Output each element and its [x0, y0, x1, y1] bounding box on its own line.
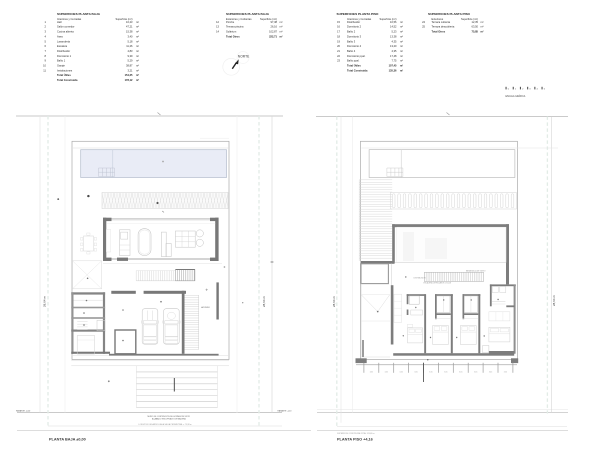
svg-text:Hall: Hall: [57, 20, 62, 24]
svg-text:DISTRIBUIDOR: DISTRIBUIDOR: [414, 277, 427, 279]
svg-text:Total Construida: Total Construida: [347, 68, 368, 72]
svg-text:17,48: 17,48: [390, 54, 397, 58]
svg-text:Distribuidor: Distribuidor: [347, 20, 360, 24]
svg-text:3,40: 3,40: [127, 34, 133, 38]
svg-text:RASANTE -1,20: RASANTE -1,20: [278, 409, 292, 412]
svg-text:3,65: 3,65: [429, 372, 432, 374]
svg-text:Baño 1: Baño 1: [57, 59, 66, 63]
svg-text:SUPERFICIES PLANTA PISO: SUPERFICIES PLANTA PISO: [337, 12, 380, 16]
svg-text:m²: m²: [400, 26, 403, 29]
svg-text:Dormitorio ppal.: Dormitorio ppal.: [347, 54, 366, 58]
svg-text:m²: m²: [400, 40, 403, 43]
svg-text:PLANTA PISO +4,16: PLANTA PISO +4,16: [337, 437, 373, 441]
svg-text:Dormitorio 1: Dormitorio 1: [57, 54, 72, 58]
svg-text:m²: m²: [400, 55, 403, 58]
svg-text:11,26: 11,26: [126, 44, 133, 48]
svg-text:m²: m²: [400, 60, 403, 63]
svg-text:LONGITUD DESARROLLADA VALLA PE: LONGITUD DESARROLLADA VALLA PERIMETRAL =…: [138, 423, 192, 426]
svg-text:3,65: 3,65: [414, 372, 417, 374]
svg-text:5,23: 5,23: [391, 30, 397, 34]
svg-text:ESCALERA 18 PELDAÑOS 17,5x28: ESCALERA 18 PELDAÑOS 17,5x28: [424, 282, 451, 285]
svg-text:3,65: 3,65: [400, 372, 403, 374]
svg-text:m²: m²: [400, 31, 403, 34]
svg-text:47,21: 47,21: [126, 25, 133, 29]
svg-text:SUPERFICIES PLANTA PISO: SUPERFICIES PLANTA PISO: [428, 12, 471, 16]
svg-text:Terraza cubierta: Terraza cubierta: [432, 20, 451, 24]
svg-text:26,16: 26,16: [271, 25, 278, 29]
svg-text:3,21: 3,21: [127, 68, 133, 72]
svg-text:m²: m²: [136, 65, 139, 68]
svg-text:3,65: 3,65: [444, 372, 447, 374]
svg-text:m²: m²: [400, 35, 403, 38]
svg-text:14,52: 14,52: [390, 25, 397, 29]
svg-text:ACCESO: ACCESO: [201, 306, 210, 309]
svg-text:Lavandería: Lavandería: [57, 39, 71, 43]
svg-text:MURO DE CONTENCIÓN DE HORMIGÓN: MURO DE CONTENCIÓN DE HORMIGÓN VISTO: [147, 415, 190, 418]
svg-text:Dormitorio 2: Dormitorio 2: [347, 25, 362, 29]
svg-text:m²: m²: [136, 73, 139, 77]
svg-text:Total Otros: Total Otros: [226, 34, 240, 38]
svg-text:Baño 2: Baño 2: [347, 30, 356, 34]
svg-text:Instalaciones: Instalaciones: [57, 68, 73, 72]
svg-text:135,36: 135,36: [389, 68, 397, 72]
svg-text:3,65: 3,65: [474, 372, 477, 374]
svg-text:m²: m²: [400, 50, 403, 53]
svg-text:3,65: 3,65: [385, 372, 388, 374]
svg-text:7,75: 7,75: [391, 59, 397, 63]
svg-text:m²: m²: [136, 31, 139, 34]
svg-text:Dormitorio 4: Dormitorio 4: [347, 44, 362, 48]
svg-text:Total Otros: Total Otros: [432, 30, 446, 34]
svg-text:15,38: 15,38: [126, 30, 133, 34]
svg-text:m²: m²: [280, 31, 283, 34]
svg-text:5,18: 5,18: [127, 39, 133, 43]
svg-text:ACABADO ENCOFRADO DE MADERA: ACABADO ENCOFRADO DE MADERA: [152, 418, 186, 421]
svg-text:m²: m²: [280, 26, 283, 29]
svg-text:3,65: 3,65: [504, 372, 507, 374]
svg-text:75,85: 75,85: [472, 30, 479, 34]
svg-text:3,65: 3,65: [489, 372, 492, 374]
svg-text:NORTE: NORTE: [238, 54, 250, 58]
svg-text:28,64 m: 28,64 m: [262, 296, 266, 307]
svg-text:Cocina abierta: Cocina abierta: [57, 30, 74, 34]
svg-text:m²: m²: [400, 21, 403, 24]
svg-text:28,64 m: 28,64 m: [332, 296, 336, 307]
svg-text:4,35: 4,35: [391, 49, 397, 53]
svg-text:m²: m²: [400, 68, 403, 72]
svg-text:Aseo: Aseo: [57, 34, 63, 38]
svg-text:m²: m²: [136, 78, 139, 82]
svg-text:BARANDILLA DE VIDRIO: BARANDILLA DE VIDRIO: [466, 269, 486, 272]
svg-text:Solárium: Solárium: [226, 30, 236, 34]
svg-text:PLANTA BAJA ±0,00: PLANTA BAJA ±0,00: [49, 437, 86, 441]
svg-text:12,35: 12,35: [472, 20, 479, 24]
svg-text:m²: m²: [400, 64, 403, 68]
svg-text:m²: m²: [280, 21, 283, 24]
svg-text:Garaje: Garaje: [57, 64, 65, 68]
svg-text:63,50: 63,50: [472, 25, 479, 29]
svg-text:178,12: 178,12: [125, 78, 133, 82]
svg-text:m²: m²: [481, 21, 484, 24]
svg-text:97,38: 97,38: [271, 20, 278, 24]
svg-text:107,45: 107,45: [389, 64, 397, 68]
svg-text:RASANTE +0,00: RASANTE +0,00: [16, 409, 30, 412]
svg-text:38,87: 38,87: [126, 64, 133, 68]
svg-text:Salón comedor: Salón comedor: [57, 25, 75, 29]
svg-text:Baño 3: Baño 3: [347, 39, 356, 43]
svg-text:10,23: 10,23: [126, 20, 133, 24]
svg-text:SUPERFICIES PLANTA BAJA: SUPERFICIES PLANTA BAJA: [57, 12, 101, 16]
svg-text:154,25: 154,25: [125, 73, 133, 77]
svg-text:13,38: 13,38: [390, 34, 397, 38]
svg-text:Distribuidor: Distribuidor: [57, 49, 70, 53]
svg-text:m²: m²: [136, 69, 139, 72]
svg-text:3,65: 3,65: [370, 372, 373, 374]
svg-text:Terraza piscina: Terraza piscina: [226, 25, 244, 29]
svg-text:Total Construida: Total Construida: [57, 78, 78, 82]
svg-text:m²: m²: [136, 50, 139, 53]
svg-text:28,64 m: 28,64 m: [552, 295, 556, 306]
svg-text:10,56: 10,56: [390, 20, 397, 24]
svg-text:m²: m²: [136, 21, 139, 24]
svg-text:m²: m²: [400, 45, 403, 48]
svg-text:102,87: 102,87: [269, 30, 277, 34]
svg-text:m²: m²: [136, 60, 139, 63]
svg-text:ESCALA GRÁFICA: ESCALA GRÁFICA: [506, 95, 526, 98]
svg-text:Baño 4: Baño 4: [347, 49, 356, 53]
svg-text:4,83: 4,83: [127, 49, 133, 53]
svg-text:Escalera: Escalera: [57, 44, 68, 48]
svg-text:Terraza descubierta: Terraza descubierta: [432, 25, 455, 29]
svg-text:3,65: 3,65: [459, 372, 462, 374]
svg-text:13,20: 13,20: [390, 44, 397, 48]
svg-text:28,64 m: 28,64 m: [42, 296, 46, 307]
svg-text:SUPERFICIES PLANTA BAJA: SUPERFICIES PLANTA BAJA: [226, 12, 270, 16]
svg-text:m²: m²: [136, 35, 139, 38]
svg-text:Dormitorio 3: Dormitorio 3: [347, 34, 362, 38]
svg-text:222,71: 222,71: [269, 34, 277, 38]
svg-text:m²: m²: [136, 45, 139, 48]
svg-text:m²: m²: [136, 26, 139, 29]
svg-text:m²: m²: [136, 55, 139, 58]
svg-text:9,39: 9,39: [127, 54, 133, 58]
svg-text:m²: m²: [280, 34, 283, 38]
svg-text:m²: m²: [136, 40, 139, 43]
svg-text:4,35: 4,35: [391, 39, 397, 43]
svg-text:m²: m²: [481, 26, 484, 29]
svg-text:Baño ppal.: Baño ppal.: [347, 59, 360, 63]
svg-text:Porche: Porche: [226, 20, 235, 24]
svg-text:m²: m²: [481, 30, 484, 34]
svg-text:SUPERFICIE CONSTRUIDA TOTAL 31: SUPERFICIE CONSTRUIDA TOTAL 313,48 m²: [337, 432, 375, 435]
svg-text:5,29: 5,29: [127, 59, 133, 63]
